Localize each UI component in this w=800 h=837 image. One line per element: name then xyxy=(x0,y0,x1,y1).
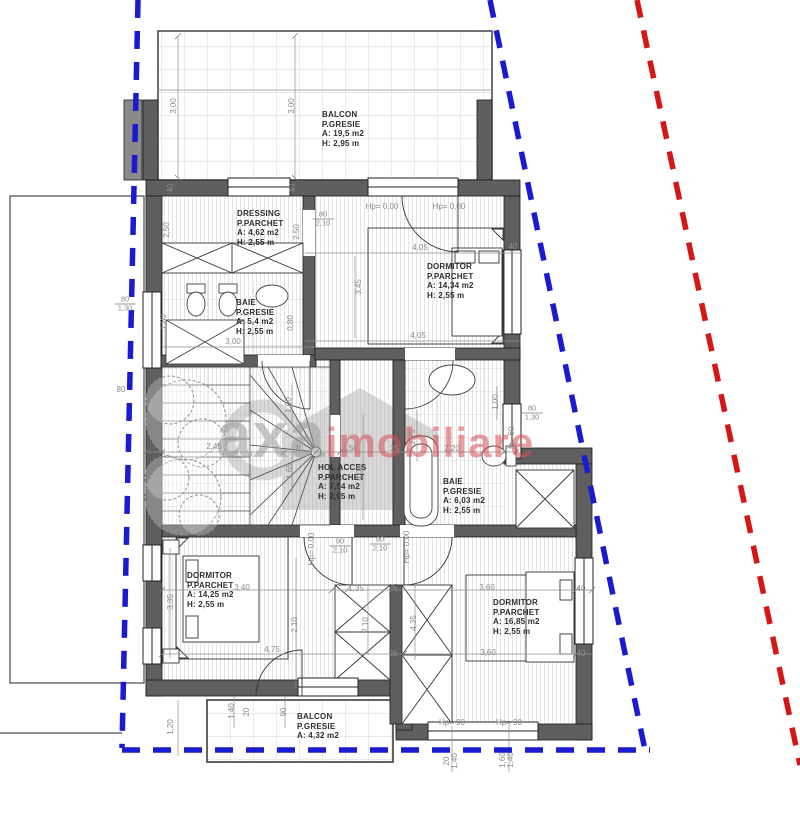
balcony-top xyxy=(124,31,492,180)
boundary-red-diagonal xyxy=(637,0,800,765)
floorplan-page: axaimobiliare BALCONP.GRESIEA: 19,5 m2H:… xyxy=(0,0,800,837)
floorplan-drawing xyxy=(0,0,800,837)
balcony-bottom xyxy=(207,700,393,762)
